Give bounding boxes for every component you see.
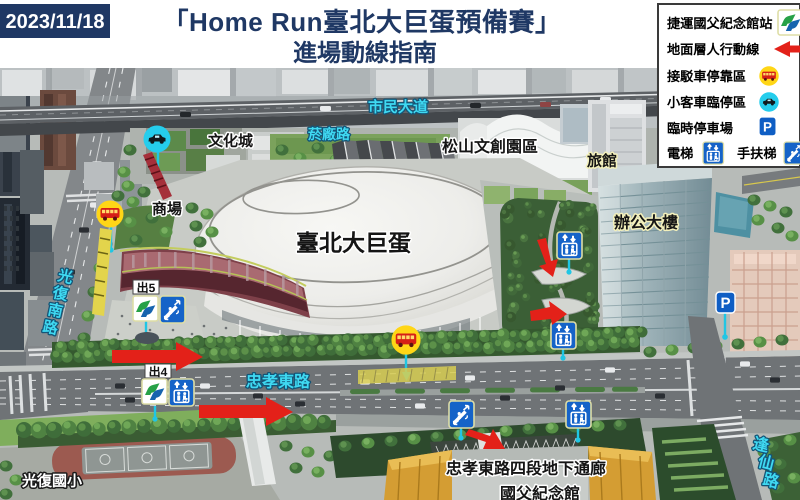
svg-text:辦公大樓: 辦公大樓 [614,214,678,232]
svg-text:接駁車停靠區: 接駁車停靠區 [667,69,746,84]
svg-text:臨時停車場: 臨時停車場 [667,121,733,136]
svg-text:菸廠路: 菸廠路 [308,126,351,142]
svg-text:進場動線指南: 進場動線指南 [293,40,437,67]
svg-text:光復國小: 光復國小 [21,473,82,490]
svg-text:2023/11/18: 2023/11/18 [6,11,105,33]
svg-text:地面層人行動線: 地面層人行動線 [667,42,760,57]
svg-text:出4: 出4 [149,365,168,379]
svg-text:出5: 出5 [137,281,156,295]
svg-text:旅館: 旅館 [587,152,617,170]
svg-text:小客車臨停區: 小客車臨停區 [666,95,746,110]
svg-text:國父紀念館: 國父紀念館 [500,484,580,500]
svg-text:臺北大巨蛋: 臺北大巨蛋 [296,230,411,256]
svg-text:市民大道: 市民大道 [368,98,428,116]
svg-text:文化城: 文化城 [208,132,253,150]
svg-text:商場: 商場 [152,200,182,218]
svg-text:松山文創園區: 松山文創園區 [442,138,538,156]
svg-text:手扶梯: 手扶梯 [737,146,777,161]
svg-text:忠孝東路四段地下通廊: 忠孝東路四段地下通廊 [446,460,606,478]
svg-text:忠孝東路: 忠孝東路 [246,373,311,391]
svg-text:電梯: 電梯 [667,146,693,161]
svg-text:捷運國父紀念館站: 捷運國父紀念館站 [667,16,773,31]
svg-text:「Home Run臺北大巨蛋預備賽」: 「Home Run臺北大巨蛋預備賽」 [162,7,561,37]
